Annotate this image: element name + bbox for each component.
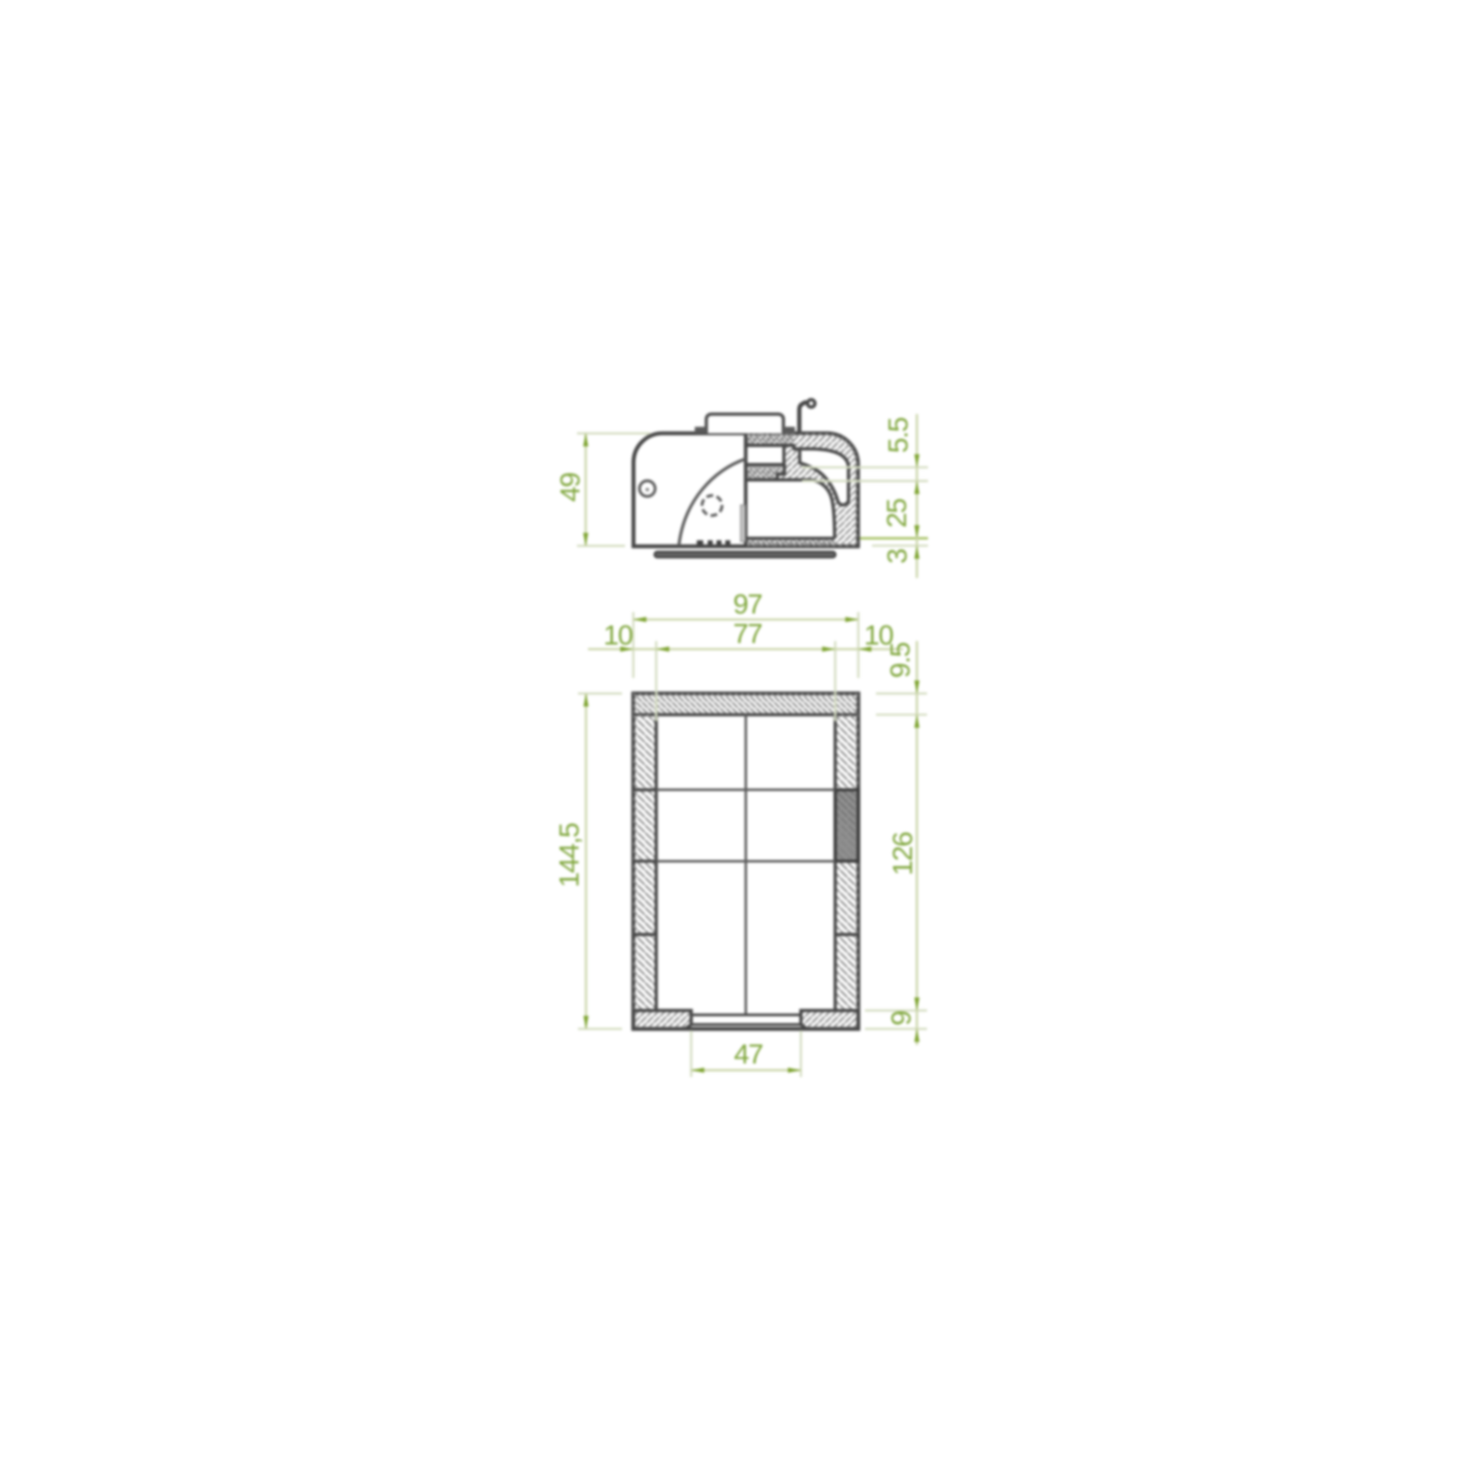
svg-text:97: 97 (733, 589, 762, 620)
svg-text:10: 10 (603, 619, 632, 650)
svg-text:3: 3 (882, 549, 913, 564)
svg-text:126: 126 (887, 832, 918, 876)
svg-text:77: 77 (733, 618, 762, 649)
svg-text:9.5: 9.5 (885, 642, 916, 678)
svg-text:47: 47 (734, 1039, 763, 1070)
svg-text:25: 25 (881, 499, 912, 528)
svg-text:9: 9 (886, 1011, 917, 1026)
svg-text:144,5: 144,5 (554, 823, 585, 888)
svg-text:49: 49 (554, 473, 585, 502)
svg-text:5.5: 5.5 (883, 417, 914, 453)
